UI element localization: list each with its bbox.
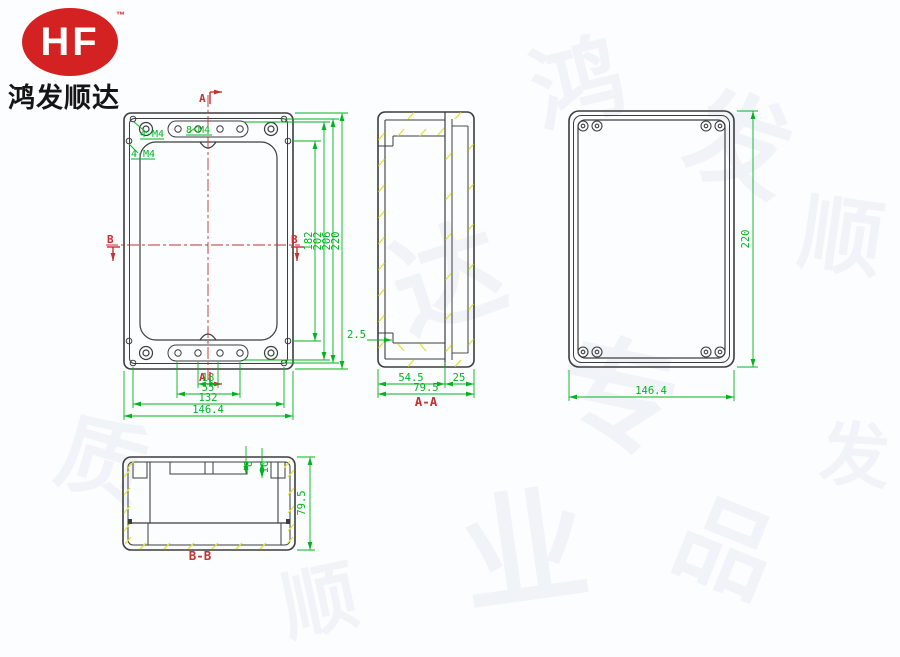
leader-4-m4-upper: 4-M4 — [140, 129, 164, 140]
rear-mid-outline — [574, 116, 730, 363]
drawing-page: { "logo": { "brand": "HF", "tm": "™", "c… — [0, 0, 900, 636]
front-dimensions — [124, 113, 348, 420]
section-aa-view — [378, 112, 474, 367]
leader-4-m4-lower: 4-M4 — [131, 149, 155, 160]
section-marker-b-left: B — [107, 233, 114, 246]
aa-outer-outline — [378, 112, 474, 367]
section-aa-title: A-A — [415, 394, 438, 409]
dim-2-5: 2.5 — [347, 329, 366, 341]
dim-220-front: 220 — [330, 232, 342, 251]
leader-8-m4: 8-M4 — [186, 125, 210, 136]
dim-146-rear: 146.4 — [635, 385, 667, 397]
dim-25: 25 — [453, 372, 466, 384]
rear-view — [569, 111, 734, 367]
dim-10: 10 — [259, 461, 271, 474]
rear-inner-outline — [578, 120, 725, 358]
dim-146-front: 146.4 — [192, 404, 224, 416]
front-corner-screws — [140, 123, 278, 360]
section-marker-a-top: A — [199, 92, 206, 105]
section-marker-b-right: B — [291, 233, 298, 246]
rear-outer-outline — [569, 111, 734, 367]
dim-79-5-bb: 79.5 — [296, 490, 308, 515]
front-inner-wall — [140, 142, 277, 340]
dim-132: 132 — [199, 392, 218, 404]
rear-corner-screws — [578, 121, 725, 357]
front-flange-holes — [175, 126, 243, 356]
cad-drawing: A A B B 4-M4 4-M4 8-M4 182 202 206 220 1… — [0, 0, 900, 636]
dim-220-rear: 220 — [740, 230, 752, 249]
dim-8: 8 — [243, 461, 255, 467]
section-aa-hatching — [379, 113, 474, 367]
dim-79-5-aa: 79.5 — [413, 382, 438, 394]
section-bb-title: B-B — [189, 548, 212, 563]
